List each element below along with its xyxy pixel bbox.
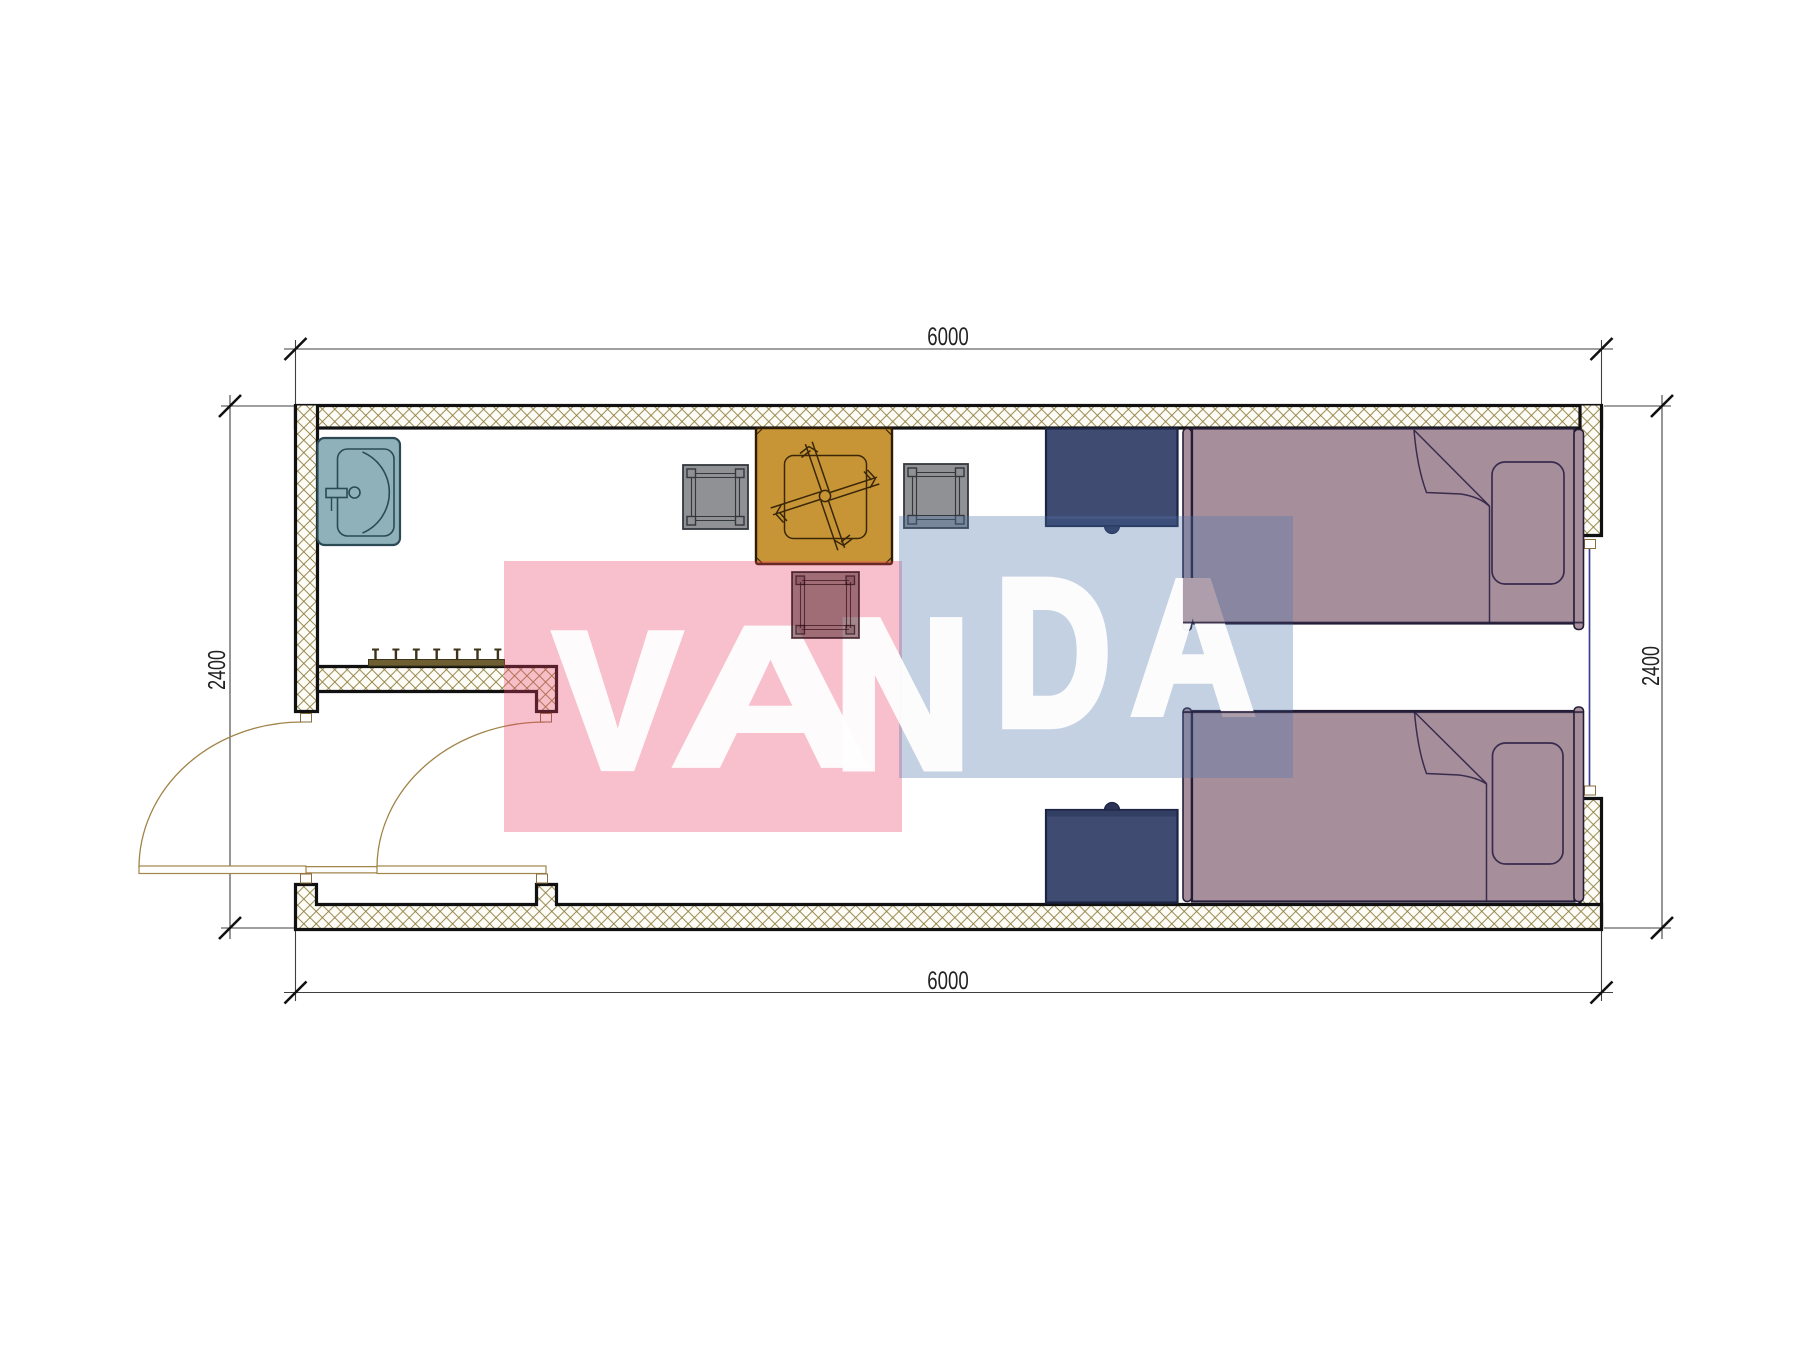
svg-text:A: A (1132, 543, 1254, 754)
svg-text:2400: 2400 (204, 650, 231, 690)
svg-text:6000: 6000 (927, 323, 968, 351)
svg-text:2400: 2400 (1638, 646, 1665, 686)
svg-text:6000: 6000 (927, 967, 968, 995)
svg-text:V: V (555, 592, 681, 808)
svg-text:D: D (996, 537, 1111, 768)
